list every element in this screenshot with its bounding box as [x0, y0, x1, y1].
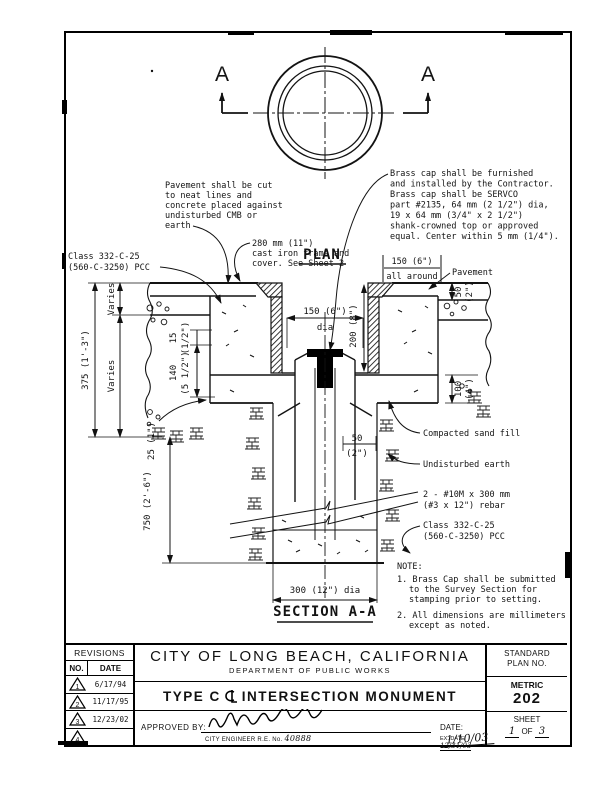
callout-compacted-sand: Compacted sand fill	[389, 401, 520, 439]
plan-title-prefix: TYPE C	[163, 689, 221, 704]
svg-text:Class 332-C-25: Class 332-C-25	[423, 521, 495, 531]
dim-50-sand: 50	[352, 434, 363, 444]
svg-text:except as noted.: except as noted.	[409, 621, 491, 631]
svg-text:1: 1	[75, 684, 79, 691]
revision-triangle-icon: 1	[69, 677, 86, 691]
dim-140: 140	[169, 365, 179, 381]
svg-text:4: 4	[75, 737, 79, 744]
section-cut-left	[222, 93, 248, 113]
svg-text:150 (6"): 150 (6")	[392, 257, 433, 267]
svg-text:(#3 x 12") rebar: (#3 x 12") rebar	[423, 501, 505, 511]
dim-150: 150 (6")	[303, 307, 346, 317]
revision-triangle-icon: 4	[69, 730, 86, 744]
section-cut-right	[403, 93, 428, 113]
dim-300: 300 (12") dia	[290, 586, 360, 596]
engineer-number: 40888	[284, 734, 311, 743]
dim-50-in: (2")	[465, 281, 475, 303]
signature	[205, 709, 355, 733]
svg-text:(560-C-3250) PCC: (560-C-3250) PCC	[68, 263, 150, 273]
title-block-right: STANDARD PLAN NO. METRIC 202 SHEET 1 OF …	[487, 645, 567, 745]
callout-frame-cover: 280 mm (11") cast iron frame and cover. …	[235, 239, 350, 281]
callout-pavement: Pavement	[429, 268, 493, 289]
revision-row: 3 12/23/02	[66, 711, 133, 729]
dim-150-dia: dia	[317, 323, 333, 333]
approved-by-label: APPROVED BY:	[141, 723, 206, 732]
svg-text:cast iron frame and: cast iron frame and	[252, 249, 349, 259]
date-label: DATE:	[440, 723, 463, 732]
standard-plan-no-label: STANDARD PLAN NO.	[487, 645, 567, 677]
revision-row: 4	[66, 729, 133, 746]
plan-title: TYPE C INTERSECTION MONUMENT	[135, 682, 485, 711]
svg-text:(560-C-3250) PCC: (560-C-3250) PCC	[423, 532, 505, 542]
svg-text:2 - #10M x 300 mm: 2 - #10M x 300 mm	[423, 490, 510, 500]
dim-140-in: (5 1/2")	[181, 351, 191, 394]
standard-plan-sheet: A A PLAN Pavement shall be cut to neat l…	[0, 0, 612, 792]
revision-triangle-icon: 3	[69, 712, 86, 726]
svg-text:2: 2	[75, 702, 79, 709]
leader-line	[402, 526, 420, 553]
rebar-lines	[230, 492, 418, 538]
svg-text:Brass cap shall be SERVCO: Brass cap shall be SERVCO	[390, 190, 518, 200]
svg-text:to neat lines and: to neat lines and	[165, 191, 252, 201]
sheet-total: 3	[535, 726, 549, 738]
svg-text:3: 3	[75, 719, 79, 726]
title-block-center: CITY OF LONG BEACH, CALIFORNIA DEPARTMEN…	[135, 645, 487, 745]
department-name: DEPARTMENT OF PUBLIC WORKS	[135, 666, 485, 675]
svg-text:Undisturbed earth: Undisturbed earth	[423, 460, 510, 470]
leader-line	[193, 226, 228, 283]
svg-text:undisturbed CMB or: undisturbed CMB or	[165, 211, 257, 221]
svg-text:stamping prior to setting.: stamping prior to setting.	[409, 595, 542, 605]
leader-line	[388, 454, 420, 464]
sheet-number: 1	[505, 726, 519, 738]
dim-15-in: (1/2")	[181, 322, 191, 355]
revision-row: 2 11/17/95	[66, 694, 133, 712]
scan-dot	[151, 70, 153, 72]
engineer-label: CITY ENGINEER R.E. No.	[205, 737, 283, 743]
dim-varies-lower: Varies	[107, 360, 117, 393]
svg-text:2. All dimensions are millimet: 2. All dimensions are millimeters	[397, 611, 566, 621]
dim-varies-upper: Varies	[107, 283, 117, 316]
dim-50-sand-in: (2")	[346, 449, 368, 459]
callout-rebar: 2 - #10M x 300 mm (#3 x 12") rebar	[423, 490, 510, 511]
leader-line	[389, 401, 420, 433]
revisions-header: REVISIONS	[66, 645, 133, 661]
svg-text:concrete placed against: concrete placed against	[165, 201, 283, 211]
leader-line	[160, 267, 221, 303]
broken-edge-left	[145, 283, 152, 418]
section-label: SECTION A-A	[273, 604, 377, 620]
dim-25: 25 (1")	[147, 422, 157, 460]
svg-text:cover. See Sheet 2: cover. See Sheet 2	[252, 259, 344, 269]
centerline-symbol-icon	[225, 689, 238, 704]
ex-date-value: 12/31/03	[440, 742, 471, 751]
broken-edge-right	[486, 283, 492, 386]
svg-text:Brass cap shall be furnished: Brass cap shall be furnished	[390, 169, 533, 179]
plan-number: 202	[487, 690, 567, 707]
svg-text:part #2135, 64 mm (2 1/2") dia: part #2135, 64 mm (2 1/2") dia,	[390, 201, 549, 211]
dim-375: 375 (1'-3")	[81, 330, 91, 390]
dim-all-around: 150 (6") all around	[383, 255, 441, 282]
agency-name: CITY OF LONG BEACH, CALIFORNIA	[135, 648, 485, 665]
section-marker-left: A	[215, 63, 229, 86]
concrete-speckle	[222, 305, 432, 554]
svg-text:1. Brass Cap shall be submitte: 1. Brass Cap shall be submitted	[397, 575, 556, 585]
svg-text:Pavement shall be cut: Pavement shall be cut	[165, 181, 272, 191]
aggregate	[147, 300, 472, 426]
revisions-columns: NO. DATE	[66, 661, 133, 676]
sheet-of: OF	[521, 727, 532, 736]
svg-text:earth: earth	[165, 221, 191, 231]
dim-50: 50	[454, 287, 464, 298]
approval-row: APPROVED BY: CITY ENGINEER R.E. No. 4088…	[135, 711, 485, 745]
svg-text:shank-crowned top or approved: shank-crowned top or approved	[390, 222, 538, 232]
notes-heading: NOTE:	[397, 562, 423, 572]
revision-date: 12/23/02	[88, 715, 133, 724]
revisions-table: REVISIONS NO. DATE 1 6/17/94 2 11/17/95 …	[66, 645, 135, 745]
sheet-label: SHEET	[487, 715, 567, 724]
revisions-col-no: NO.	[66, 661, 88, 675]
callout-class-pcc-bottom: Class 332-C-25 (560-C-3250) PCC	[402, 521, 505, 553]
notes-block: NOTE: 1. Brass Cap shall be submitted to…	[397, 562, 566, 631]
leader-line	[235, 243, 250, 281]
section-marker-right: A	[421, 63, 435, 86]
svg-text:all around: all around	[386, 272, 437, 282]
svg-text:Class 332-C-25: Class 332-C-25	[68, 252, 140, 262]
revision-date: 11/17/95	[88, 697, 133, 706]
revision-triangle-icon: 2	[69, 695, 86, 709]
dim-200: 200 (8")	[349, 304, 359, 347]
svg-text:and installed by the Contracto: and installed by the Contractor.	[390, 180, 554, 190]
metric-label: METRIC	[487, 680, 567, 690]
dim-15: 15	[169, 333, 179, 344]
sheet-cell: SHEET 1 OF 3	[487, 712, 567, 745]
svg-text:19 x 64 mm (3/4" x 2 1/2"): 19 x 64 mm (3/4" x 2 1/2")	[390, 211, 523, 221]
revision-date: 6/17/94	[88, 680, 133, 689]
dim-750: 750 (2'-6")	[143, 471, 153, 531]
svg-text:Pavement: Pavement	[452, 268, 493, 278]
svg-text:Compacted sand fill: Compacted sand fill	[423, 429, 520, 439]
svg-text:to the Survey Section for: to the Survey Section for	[409, 585, 537, 595]
svg-text:equal. Center within 5 mm (1/4: equal. Center within 5 mm (1/4").	[390, 232, 559, 242]
callout-undisturbed-earth: Undisturbed earth	[388, 454, 510, 470]
dim-100: 100	[454, 381, 464, 397]
title-block: REVISIONS NO. DATE 1 6/17/94 2 11/17/95 …	[66, 643, 567, 745]
svg-text:280 mm (11"): 280 mm (11")	[252, 239, 313, 249]
plan-title-suffix: INTERSECTION MONUMENT	[242, 689, 457, 704]
revisions-col-date: DATE	[88, 661, 133, 675]
dim-100-in: (4")	[465, 378, 475, 400]
revision-row: 1 6/17/94	[66, 676, 133, 694]
